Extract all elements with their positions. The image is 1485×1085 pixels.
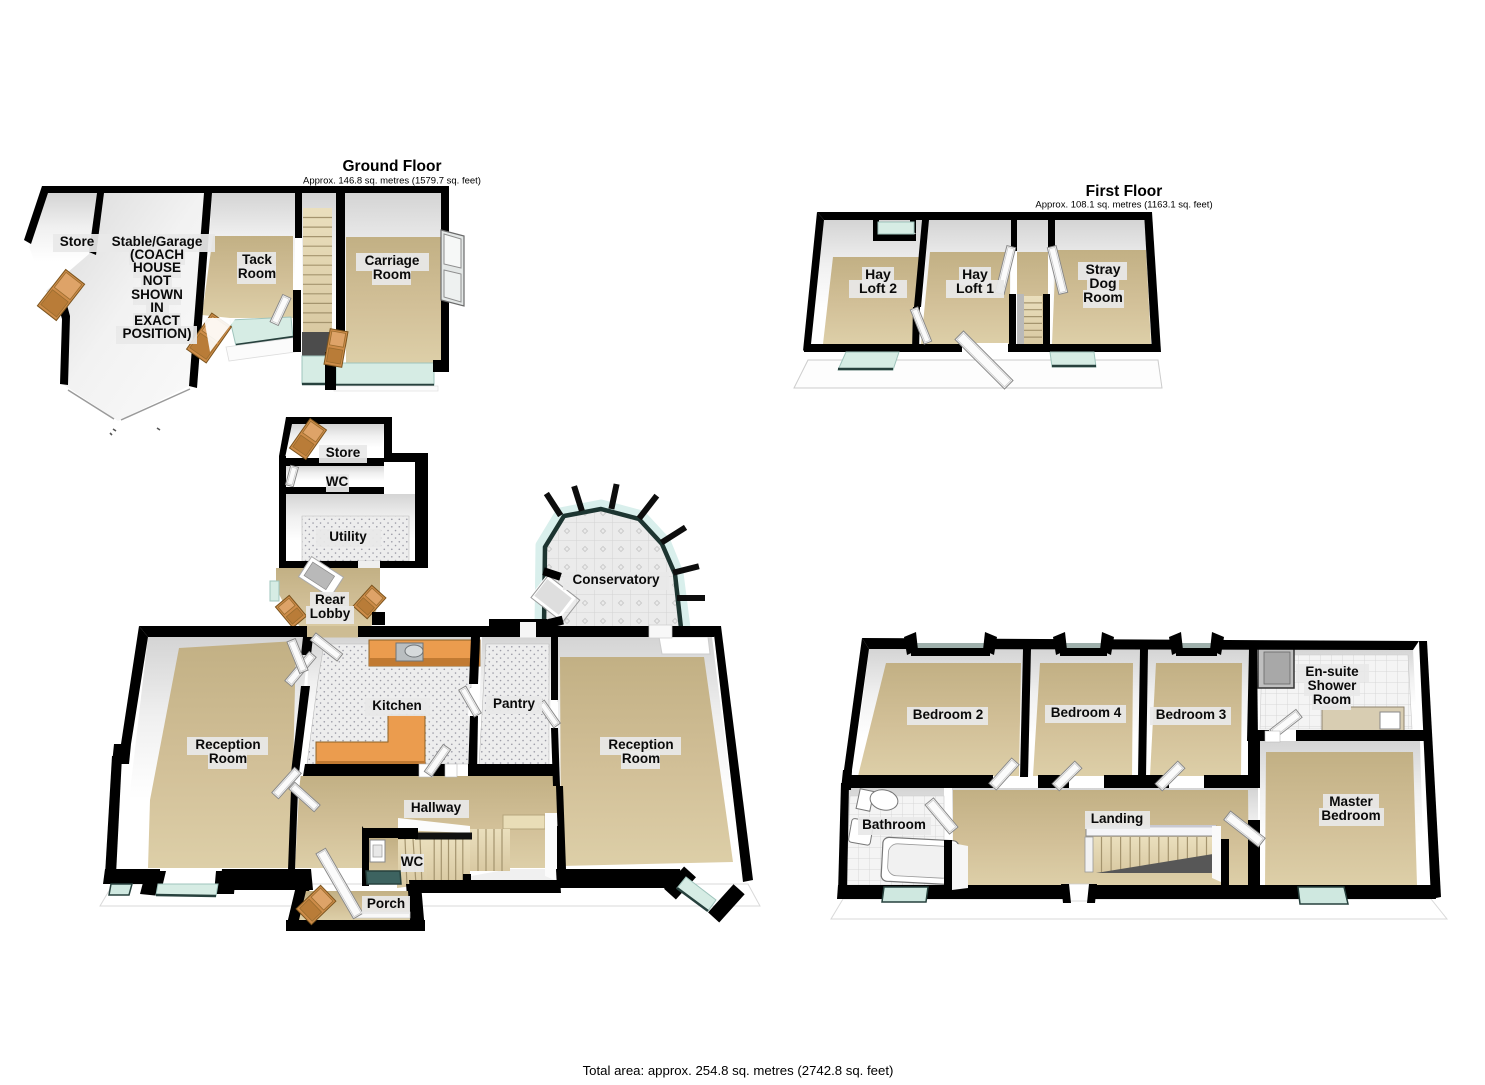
svg-text:Conservatory: Conservatory — [572, 572, 660, 587]
svg-text:WC: WC — [401, 854, 424, 869]
svg-text:WC: WC — [326, 474, 349, 489]
svg-text:Hallway: Hallway — [411, 800, 462, 815]
svg-text:NOT: NOT — [143, 273, 172, 288]
svg-text:Room: Room — [373, 267, 411, 282]
svg-text:Carriage: Carriage — [365, 253, 420, 268]
svg-text:Bedroom 3: Bedroom 3 — [1156, 707, 1227, 722]
svg-text:En-suite: En-suite — [1305, 664, 1359, 679]
svg-text:Landing: Landing — [1091, 811, 1144, 826]
svg-text:First Floor: First Floor — [1086, 183, 1163, 200]
svg-text:Store: Store — [326, 445, 361, 460]
svg-text:Ground Floor: Ground Floor — [342, 158, 441, 175]
svg-text:Rear: Rear — [315, 592, 346, 607]
svg-text:Bathroom: Bathroom — [862, 817, 926, 832]
svg-text:Reception: Reception — [608, 737, 673, 752]
svg-text:POSITION): POSITION) — [122, 326, 191, 341]
svg-text:Room: Room — [1313, 692, 1351, 707]
svg-text:Total area: approx. 254.8 sq.: Total area: approx. 254.8 sq. metres (27… — [583, 1063, 894, 1078]
svg-text:Loft 2: Loft 2 — [859, 280, 897, 296]
svg-text:Bedroom 4: Bedroom 4 — [1051, 705, 1122, 720]
svg-text:Room: Room — [238, 266, 276, 281]
svg-text:Porch: Porch — [367, 896, 405, 911]
svg-text:Utility: Utility — [329, 529, 367, 544]
svg-text:Pantry: Pantry — [493, 696, 536, 711]
svg-text:Room: Room — [209, 751, 247, 766]
svg-text:Shower: Shower — [1308, 678, 1358, 693]
svg-text:Lobby: Lobby — [310, 606, 351, 621]
svg-text:Bedroom 2: Bedroom 2 — [913, 707, 984, 722]
svg-text:Room: Room — [622, 751, 660, 766]
svg-text:Reception: Reception — [195, 737, 260, 752]
svg-text:Kitchen: Kitchen — [372, 698, 422, 713]
svg-text:Approx. 146.8 sq. metres (1579: Approx. 146.8 sq. metres (1579.7 sq. fee… — [303, 176, 481, 187]
svg-text:Master: Master — [1329, 794, 1373, 809]
svg-text:Loft 1: Loft 1 — [956, 280, 994, 296]
svg-text:Bedroom: Bedroom — [1321, 808, 1380, 823]
svg-text:Room: Room — [1083, 289, 1123, 305]
svg-text:Tack: Tack — [242, 252, 272, 267]
svg-text:Approx. 108.1 sq. metres (1163: Approx. 108.1 sq. metres (1163.1 sq. fee… — [1035, 200, 1212, 211]
svg-text:Store: Store — [60, 234, 95, 249]
